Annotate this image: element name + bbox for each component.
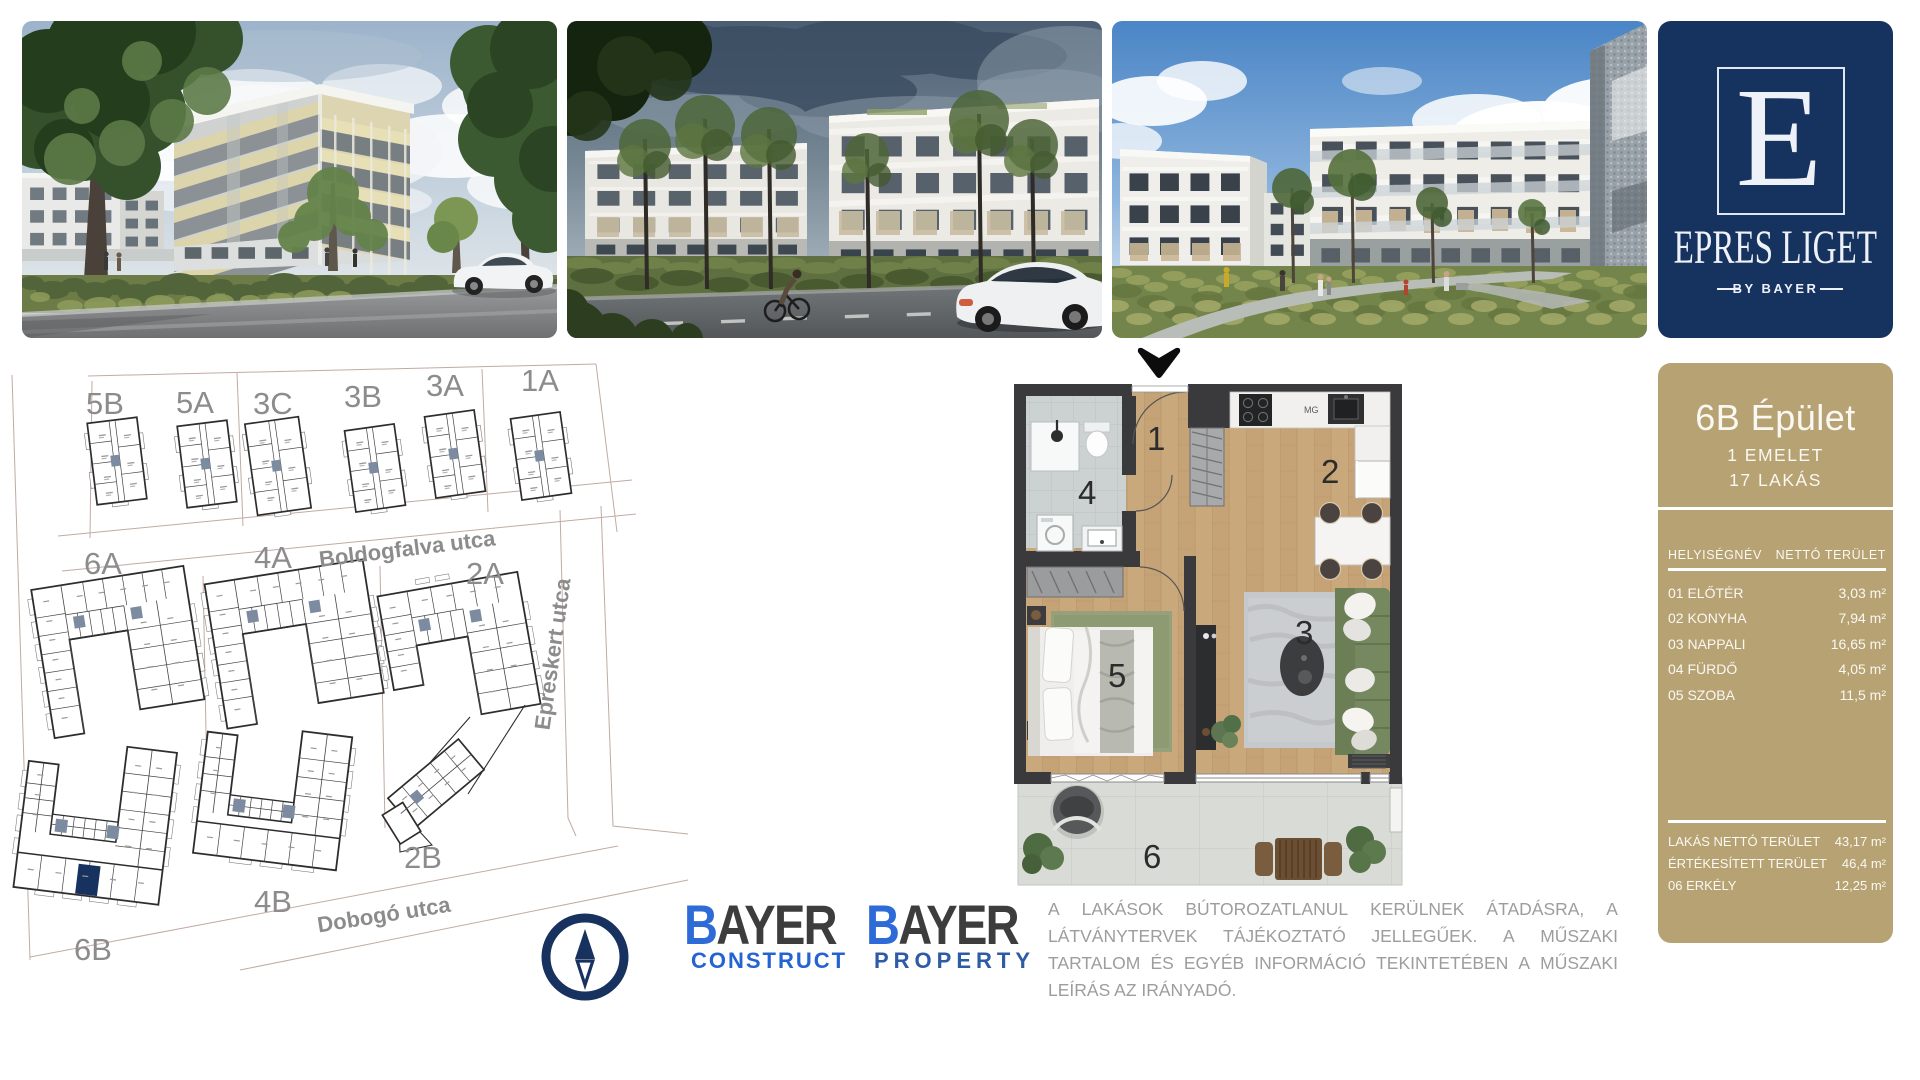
svg-text:6A: 6A <box>84 546 122 581</box>
svg-text:2A: 2A <box>466 556 504 591</box>
svg-text:4: 4 <box>1078 474 1096 511</box>
svg-text:1A: 1A <box>521 363 559 398</box>
svg-text:3: 3 <box>1295 614 1313 651</box>
svg-text:5A: 5A <box>176 385 214 420</box>
svg-text:MG: MG <box>1304 405 1319 415</box>
svg-text:3B: 3B <box>344 379 382 414</box>
svg-text:1: 1 <box>1147 420 1165 457</box>
svg-text:2: 2 <box>1321 453 1339 490</box>
svg-text:3A: 3A <box>426 368 464 403</box>
svg-text:6B: 6B <box>74 932 112 967</box>
svg-text:5B: 5B <box>86 386 124 421</box>
svg-text:5: 5 <box>1108 657 1126 694</box>
svg-text:4B: 4B <box>254 884 292 919</box>
svg-text:2B: 2B <box>404 840 442 875</box>
svg-text:6: 6 <box>1143 838 1161 875</box>
svg-text:4A: 4A <box>254 540 292 575</box>
svg-text:3C: 3C <box>253 386 293 421</box>
